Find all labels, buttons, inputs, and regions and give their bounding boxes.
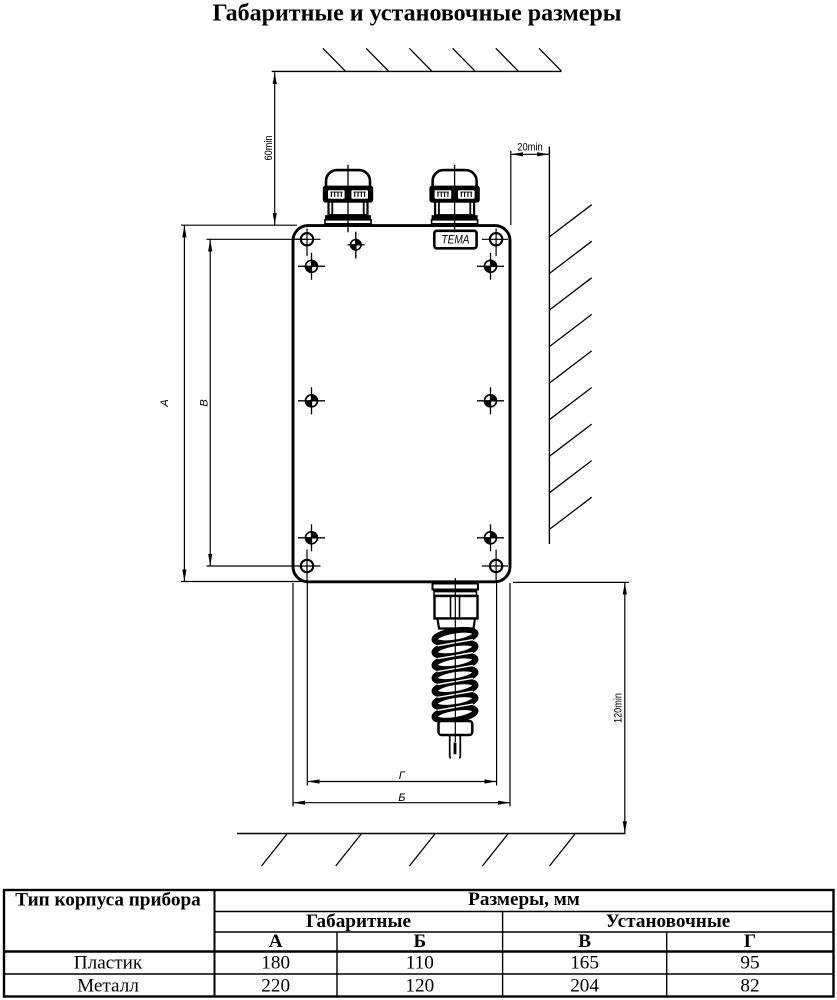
svg-text:95: 95 bbox=[740, 953, 759, 974]
svg-text:Установочные: Установочные bbox=[606, 911, 731, 932]
svg-text:60min: 60min bbox=[263, 136, 275, 161]
svg-text:Габаритные и установочные разм: Габаритные и установочные размеры bbox=[212, 1, 621, 27]
svg-text:165: 165 bbox=[570, 953, 599, 974]
svg-text:В: В bbox=[578, 931, 591, 952]
svg-text:В: В bbox=[198, 399, 210, 406]
svg-text:120min: 120min bbox=[613, 693, 625, 723]
svg-text:110: 110 bbox=[406, 953, 434, 974]
svg-text:Габаритные: Габаритные bbox=[306, 911, 411, 932]
svg-text:Б: Б bbox=[398, 792, 405, 804]
svg-text:А: А bbox=[269, 931, 283, 952]
svg-text:Размеры, мм: Размеры, мм bbox=[468, 889, 580, 910]
svg-text:Пластик: Пластик bbox=[74, 953, 143, 974]
svg-text:Б: Б bbox=[413, 931, 426, 952]
svg-text:204: 204 bbox=[570, 976, 599, 997]
svg-text:82: 82 bbox=[740, 976, 759, 997]
svg-text:120: 120 bbox=[405, 976, 434, 997]
svg-text:Г: Г bbox=[744, 931, 756, 952]
svg-text:220: 220 bbox=[261, 976, 290, 997]
svg-text:Г: Г bbox=[399, 770, 406, 782]
svg-text:180: 180 bbox=[261, 953, 290, 974]
svg-text:Тип корпуса прибора: Тип корпуса прибора bbox=[15, 890, 201, 911]
svg-text:Металл: Металл bbox=[77, 976, 139, 997]
svg-text:ТЕМА: ТЕМА bbox=[442, 235, 470, 247]
svg-text:20min: 20min bbox=[517, 142, 543, 154]
svg-text:А: А bbox=[159, 399, 171, 407]
